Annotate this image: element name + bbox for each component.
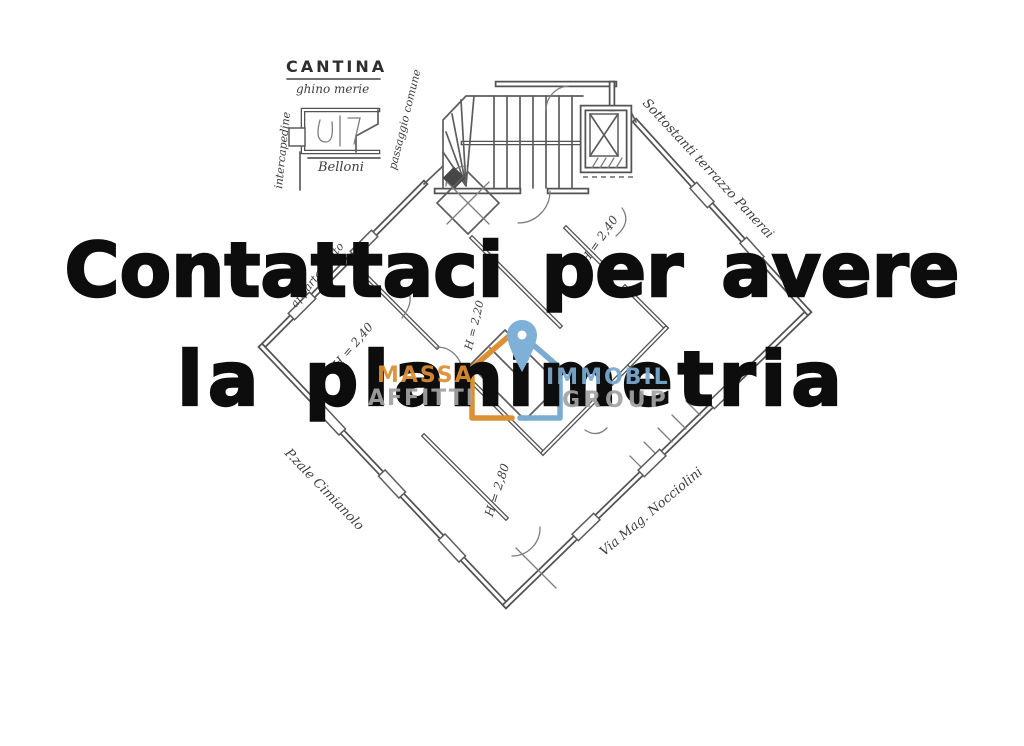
brand-wordmark-affitti: AFFITTI [368, 386, 476, 411]
brand-wordmark-group: GROUP [562, 388, 670, 413]
brand-wordmark-massa: MASSA [377, 363, 474, 388]
brand-wordmark-immobil: IMMOBIL [546, 365, 670, 390]
map-pin-icon [0, 0, 1024, 746]
listing-image: CANTINA ghino merie intercapedine passag… [0, 0, 1024, 746]
